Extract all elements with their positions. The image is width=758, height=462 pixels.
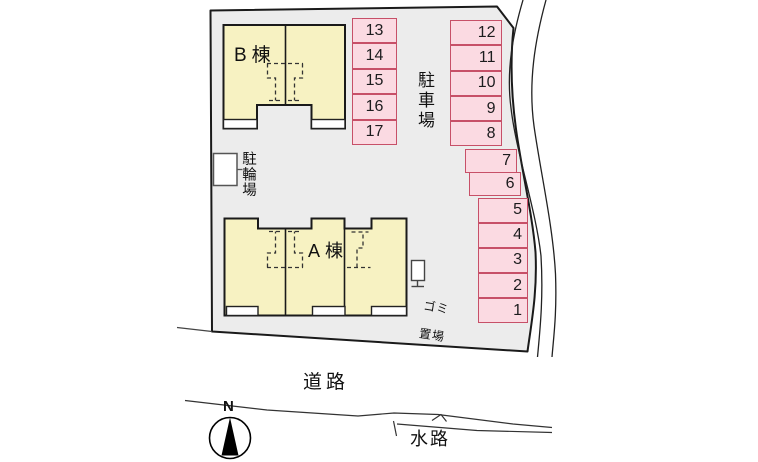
building-a-balcony-left bbox=[227, 307, 259, 316]
parking-stall-3: 3 bbox=[478, 248, 528, 273]
parking-stall-15: 15 bbox=[352, 69, 397, 94]
parking-stall-12: 12 bbox=[450, 20, 502, 45]
parking-lot-label: 駐車場 bbox=[412, 71, 437, 131]
compass-north-label: N bbox=[223, 398, 234, 415]
parking-stall-2: 2 bbox=[478, 273, 528, 298]
parking-stall-14: 14 bbox=[352, 43, 397, 68]
building-a-balcony-center bbox=[313, 307, 346, 316]
parking-stall-6: 6 bbox=[469, 172, 521, 196]
building-a-balcony-right bbox=[372, 307, 407, 316]
building-b-balcony-right bbox=[312, 120, 346, 129]
parking-stall-9: 9 bbox=[450, 96, 502, 121]
building-b-label: B棟 bbox=[234, 40, 276, 67]
parking-stall-4: 4 bbox=[478, 223, 528, 248]
road-lower-line bbox=[185, 401, 552, 428]
parking-stall-1: 1 bbox=[478, 298, 528, 323]
waterway-label: 水路 bbox=[410, 425, 450, 451]
road-edge-extension-line bbox=[177, 328, 212, 332]
parking-stall-10: 10 bbox=[450, 71, 502, 96]
road-label: 道路 bbox=[303, 367, 349, 394]
parking-stall-5: 5 bbox=[478, 198, 528, 223]
building-a-shape bbox=[225, 219, 407, 316]
parking-stall-8: 8 bbox=[450, 121, 502, 146]
garbage-area-label-line2: 置場 bbox=[418, 326, 446, 344]
parking-stall-11: 11 bbox=[450, 45, 502, 70]
parking-stall-13: 13 bbox=[352, 18, 397, 43]
parking-stall-17: 17 bbox=[352, 120, 397, 145]
east-boundary-curve-outer bbox=[532, 0, 556, 357]
garbage-area-label-line1: ゴミ bbox=[422, 299, 450, 317]
parking-stall-7: 7 bbox=[465, 149, 517, 173]
building-a-label: A棟 bbox=[308, 237, 348, 263]
bicycle-rack-icon bbox=[214, 154, 238, 186]
site-plan: 13 14 15 16 17 12 11 10 9 8 7 6 5 4 3 2 … bbox=[0, 0, 758, 462]
parking-stall-16: 16 bbox=[352, 94, 397, 119]
bicycle-parking-label: 駐輪場 bbox=[238, 151, 259, 198]
compass-icon bbox=[210, 418, 251, 459]
building-b-balcony-left bbox=[224, 120, 258, 129]
